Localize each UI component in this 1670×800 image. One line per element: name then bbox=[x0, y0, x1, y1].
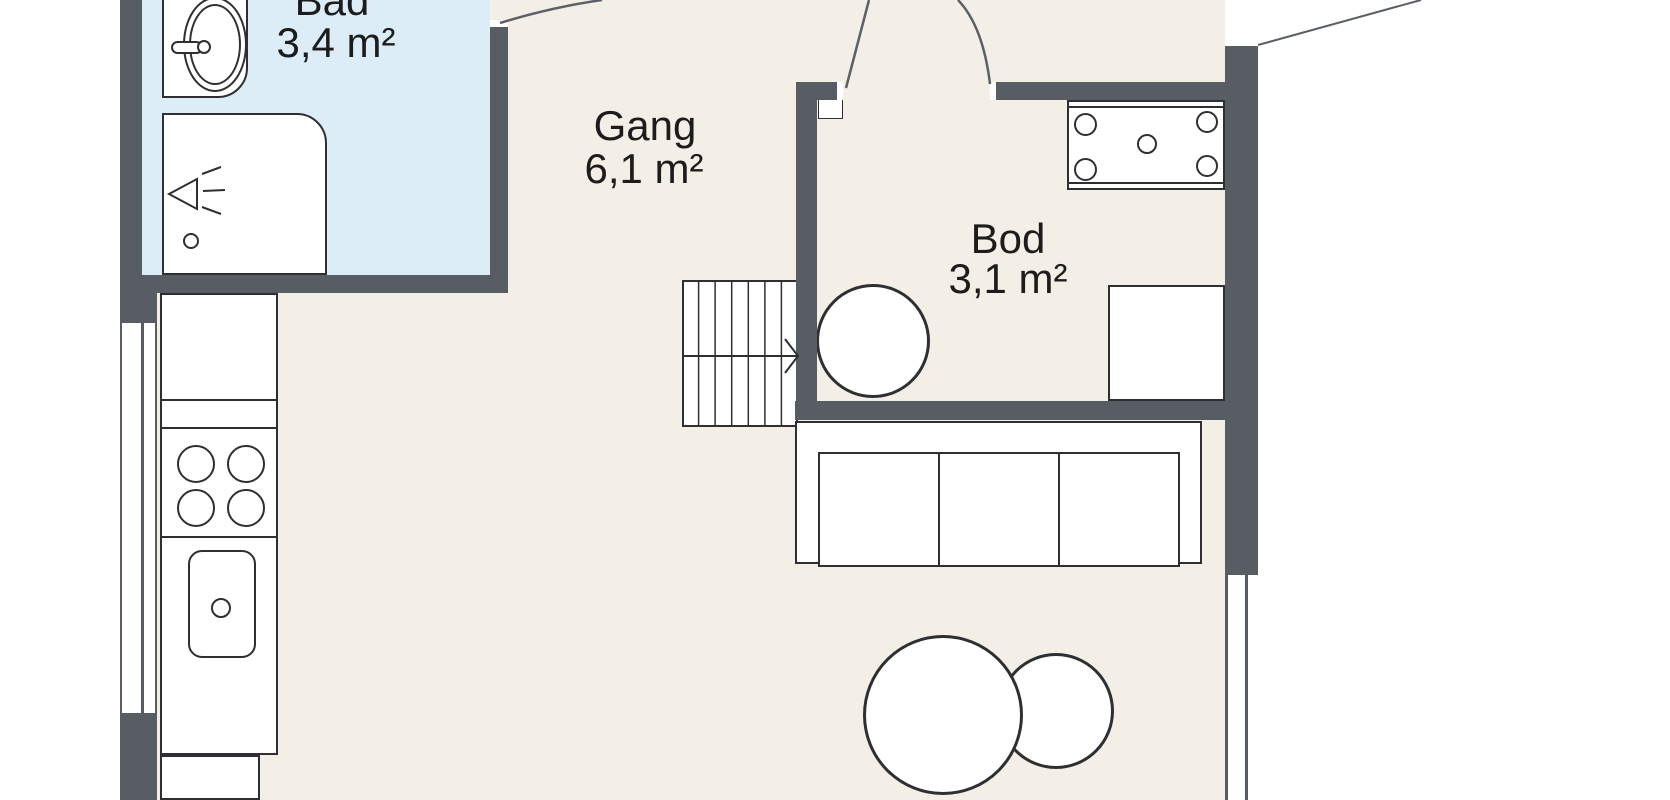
kitchen-sink-drain bbox=[211, 598, 231, 618]
bathroom-tap-knob bbox=[197, 40, 211, 54]
room-area-bad: 3,4 m² bbox=[276, 22, 395, 64]
storage-cabinet bbox=[1108, 285, 1225, 401]
bod-corner-duct bbox=[818, 98, 843, 119]
stove-burner-br bbox=[227, 489, 265, 527]
hob-center-knob bbox=[1137, 134, 1157, 154]
wall-bad-bottom bbox=[120, 275, 508, 293]
counter-divider-2 bbox=[160, 427, 278, 429]
wall-right-exterior bbox=[1225, 40, 1258, 575]
round-table-large bbox=[863, 635, 1023, 795]
stove-burner-tr bbox=[227, 445, 265, 483]
shower-drain bbox=[183, 233, 199, 249]
hob-bottom-edge-line bbox=[1069, 182, 1223, 184]
wall-bod-top-left bbox=[796, 82, 843, 100]
counter-divider-3 bbox=[160, 536, 278, 538]
shower-cabin bbox=[162, 113, 327, 275]
kitchen-counter bbox=[160, 293, 278, 755]
sofa-cushion-3 bbox=[1058, 452, 1180, 567]
wall-left-top bbox=[120, 0, 142, 275]
stove-burner-tl bbox=[177, 445, 215, 483]
window-right-mullion bbox=[1245, 575, 1248, 800]
outside-top-right-notch bbox=[1225, 0, 1258, 40]
hob-burner-br bbox=[1196, 155, 1218, 177]
hob-top-edge-line bbox=[1069, 106, 1223, 108]
room-label-bod: Bod bbox=[971, 218, 1046, 260]
outside-right bbox=[1258, 0, 1670, 800]
window-left bbox=[120, 323, 157, 713]
jamb-bad-door bbox=[490, 20, 508, 27]
hob-burner-tl bbox=[1074, 113, 1097, 136]
wall-bod-top-right bbox=[990, 82, 1225, 100]
hob-burner-bl bbox=[1074, 158, 1097, 181]
sofa-cushion-1 bbox=[818, 452, 940, 567]
jamb-bod-door-right bbox=[990, 82, 996, 100]
window-right bbox=[1225, 575, 1258, 800]
cap-right-wall-top bbox=[1225, 40, 1258, 46]
jamb-bod-door-left bbox=[837, 82, 843, 100]
staircase bbox=[682, 280, 798, 427]
wall-bod-bottom bbox=[795, 401, 1258, 420]
hob-burner-tr bbox=[1196, 111, 1218, 133]
wall-bad-right bbox=[490, 20, 508, 293]
kitchen-counter-bottom bbox=[160, 755, 260, 800]
floor-plan-canvas: Bad 3,4 m² Gang 6,1 m² Bod 3,1 m² bbox=[0, 0, 1670, 800]
wall-bod-left bbox=[796, 82, 817, 420]
room-label-gang: Gang bbox=[594, 105, 697, 147]
wall-left-bottom bbox=[120, 713, 157, 800]
room-area-gang: 6,1 m² bbox=[584, 148, 703, 190]
room-area-bod: 3,1 m² bbox=[948, 258, 1067, 300]
counter-divider-1 bbox=[160, 399, 278, 401]
water-heater bbox=[816, 284, 930, 398]
sofa-cushion-2 bbox=[938, 452, 1060, 567]
window-left-mullion bbox=[141, 323, 144, 713]
stove-burner-bl bbox=[177, 489, 215, 527]
